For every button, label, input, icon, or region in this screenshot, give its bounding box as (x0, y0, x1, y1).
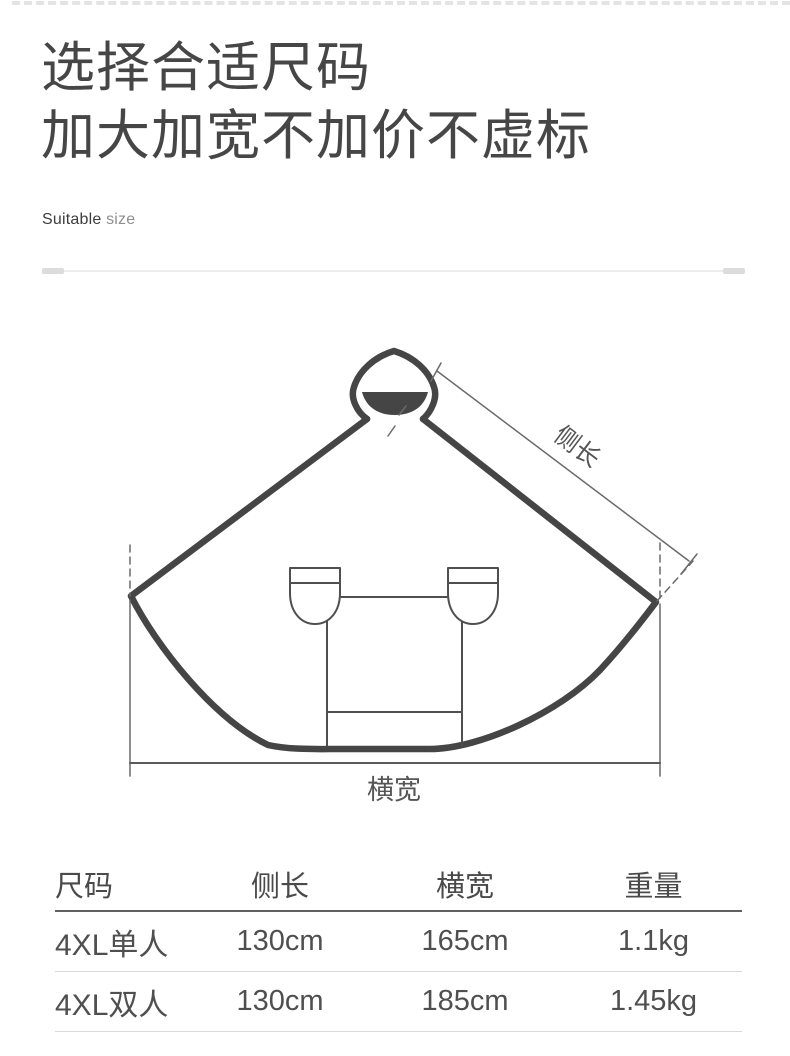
column-header-size: 尺码 (55, 863, 195, 905)
right-mirror-cup (448, 568, 498, 624)
left-mirror-cup (290, 568, 340, 624)
neck-tick-lower (388, 426, 395, 436)
row-size-value: 4XL双人 (55, 980, 195, 1024)
column-header-width: 横宽 (365, 863, 565, 905)
table-row: 4XL双人 130cm 185cm 1.45kg (55, 972, 742, 1032)
row-weight-value: 1.45kg (565, 985, 742, 1018)
size-table-header-row: 尺码 侧长 横宽 重量 (55, 858, 742, 912)
right-dashed-diagonal (657, 561, 693, 601)
size-table: 尺码 侧长 横宽 重量 4XL单人 130cm 165cm 1.1kg 4XL双… (55, 858, 742, 1032)
side-length-label: 侧长 (549, 421, 606, 473)
width-label: 横宽 (367, 775, 421, 805)
scooter-inner-lines (290, 568, 498, 746)
column-header-side-length: 侧长 (195, 863, 365, 905)
product-size-guide-page: 选择合适尺码 加大加宽不加价不虚标 Suitable size (0, 0, 790, 1056)
table-row: 4XL单人 130cm 165cm 1.1kg (55, 912, 742, 972)
hood-visor-shape (362, 392, 428, 415)
row-width-value: 185cm (365, 985, 565, 1018)
column-header-weight: 重量 (565, 863, 742, 905)
row-side-length-value: 130cm (195, 925, 365, 958)
poncho-body-outline (131, 419, 656, 749)
row-weight-value: 1.1kg (565, 925, 742, 958)
row-side-length-value: 130cm (195, 985, 365, 1018)
row-width-value: 165cm (365, 925, 565, 958)
row-size-value: 4XL单人 (55, 920, 195, 964)
